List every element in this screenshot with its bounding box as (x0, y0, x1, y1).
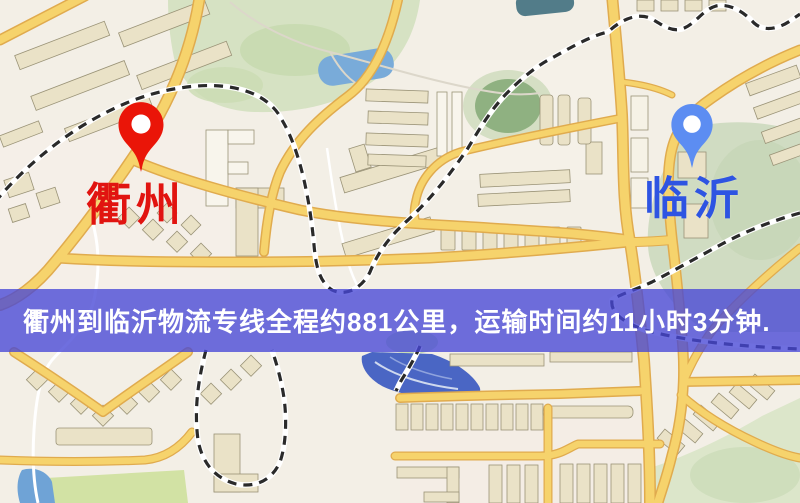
route-info-banner: 衢州到临沂物流专线全程约881公里，运输时间约11小时3分钟. (0, 289, 800, 352)
pin-body (119, 102, 164, 172)
quzhou-marker[interactable] (114, 99, 168, 175)
linyi-city-label: 临沂 (644, 176, 744, 221)
linyi-marker[interactable] (667, 103, 717, 169)
pin-body (671, 104, 712, 168)
pin-hole (683, 115, 701, 133)
map-pin-icon (667, 103, 717, 169)
route-info-text: 衢州到临沂物流专线全程约881公里，运输时间约11小时3分钟. (0, 302, 771, 339)
quzhou-city-label: 衢州 (86, 182, 186, 227)
map-pin-icon (114, 99, 168, 175)
map-screenshot: { "banner": { "text": "衢州到临沂物流专线全程约881公里… (0, 0, 800, 503)
map-canvas (0, 0, 800, 503)
pin-hole (131, 115, 150, 134)
